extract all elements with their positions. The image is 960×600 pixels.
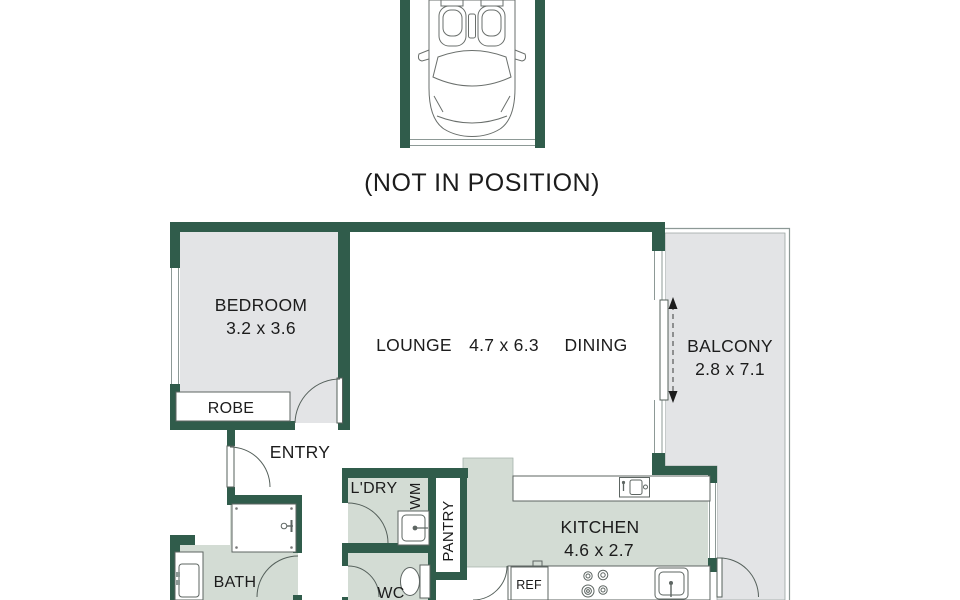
bedroom-dims: 3.2 x 3.6 <box>226 318 296 338</box>
carport-right-wall <box>535 0 545 148</box>
car-mirror-right <box>515 50 526 61</box>
balcony-dims: 2.8 x 7.1 <box>695 359 765 379</box>
robe-label: ROBE <box>208 400 255 417</box>
laundry-label: L'DRY <box>351 480 398 497</box>
floorplan-page: (NOT IN POSITION) <box>0 0 960 600</box>
car-rollbar-left <box>441 0 463 6</box>
car-illustration <box>418 0 525 137</box>
laundry-tub <box>398 511 429 545</box>
wc-label: WC <box>377 585 404 600</box>
shower-fixture <box>232 504 296 552</box>
bath-label: BATH <box>214 574 257 591</box>
bedroom-label: BEDROOM <box>215 295 308 315</box>
kitchen-dims: 4.6 x 2.7 <box>564 540 634 560</box>
kitchen-label: KITCHEN <box>561 517 640 537</box>
car-rollbar-right <box>481 0 503 6</box>
bath-vanity <box>175 552 203 600</box>
balcony-label: BALCONY <box>687 336 773 356</box>
washing-machine-label: WM <box>407 482 424 509</box>
bedroom-window <box>170 268 180 384</box>
balcony-window-upper <box>652 251 665 300</box>
lounge-label: LOUNGE <box>376 335 452 355</box>
not-in-position-note: (NOT IN POSITION) <box>364 169 600 197</box>
carport-opening <box>410 137 535 148</box>
carport-left-wall <box>400 0 410 148</box>
car-mirror-left <box>418 50 429 61</box>
kitchen-bench <box>513 476 710 501</box>
car-console <box>469 14 476 38</box>
toilet-icon <box>401 565 431 598</box>
car-windshield <box>433 51 511 87</box>
dining-label: DINING <box>564 335 627 355</box>
lounge-dining-dims: 4.7 x 6.3 <box>469 335 539 355</box>
kitchen-hall-door <box>473 566 507 600</box>
refrigerator-label: REF <box>516 578 542 592</box>
entry-door <box>227 446 270 487</box>
entry-label: ENTRY <box>270 442 331 462</box>
pantry-label: PANTRY <box>440 500 457 561</box>
balcony-window-lower <box>652 400 665 453</box>
carport <box>400 0 545 148</box>
floorplan-svg: (NOT IN POSITION) <box>0 0 960 600</box>
